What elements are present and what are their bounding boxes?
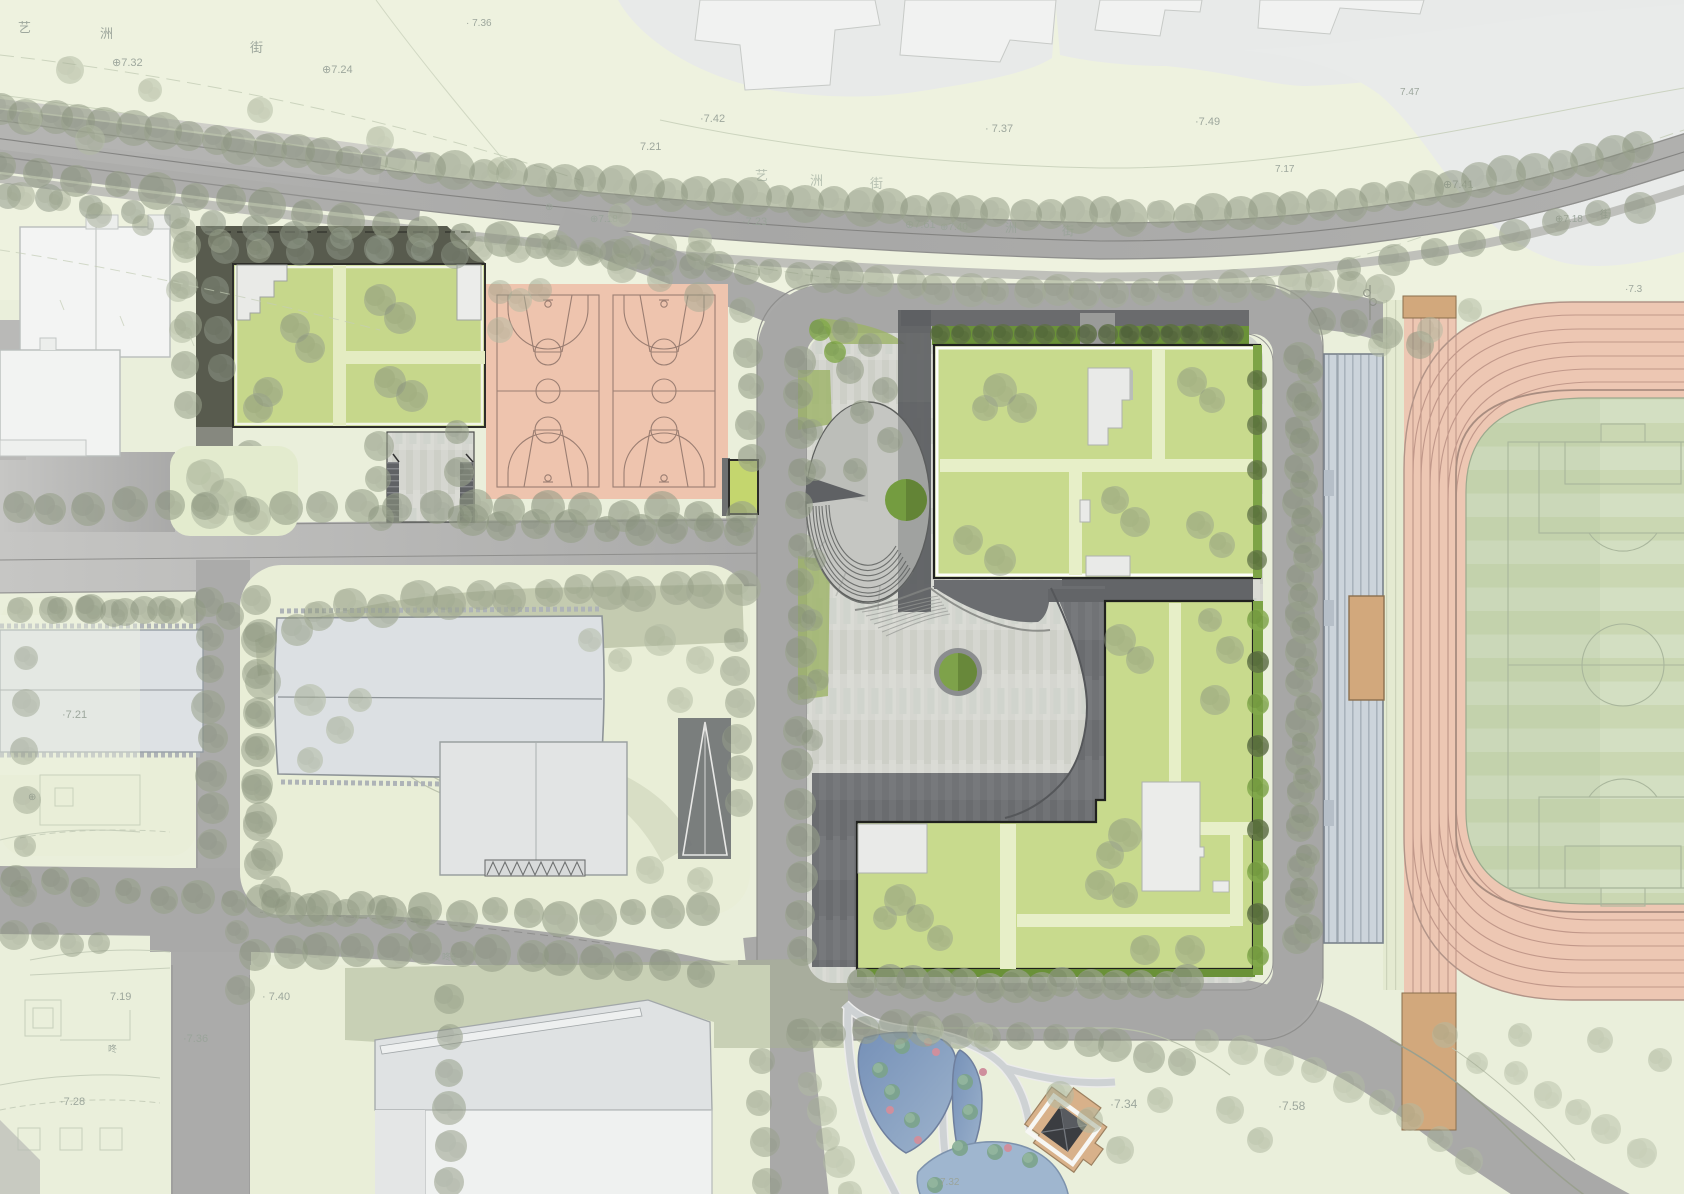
svg-text:⊕7.24: ⊕7.24 xyxy=(322,64,353,76)
svg-text:·7.28: ·7.28 xyxy=(60,1096,85,1108)
svg-text:·7.23: ·7.23 xyxy=(742,216,767,228)
svg-text:·7.34: ·7.34 xyxy=(1110,1097,1138,1111)
svg-text:·7.49: ·7.49 xyxy=(1195,116,1220,128)
svg-text:· 7.40: · 7.40 xyxy=(262,991,290,1003)
svg-text:咚: 咚 xyxy=(108,1043,117,1054)
svg-text:· 7.37: · 7.37 xyxy=(985,123,1013,135)
svg-text:·7.42: ·7.42 xyxy=(700,113,725,125)
svg-text:·7.36: ·7.36 xyxy=(183,1033,208,1045)
svg-text:· 7.36: · 7.36 xyxy=(466,18,492,29)
svg-text:7.17: 7.17 xyxy=(1275,164,1295,175)
svg-text:·7.21: ·7.21 xyxy=(62,709,87,721)
svg-text:7.19: 7.19 xyxy=(110,991,131,1003)
svg-text:⊕: ⊕ xyxy=(545,202,553,213)
svg-text:7.47: 7.47 xyxy=(1400,87,1420,98)
svg-text:7.21: 7.21 xyxy=(640,141,661,153)
svg-text:7.32: 7.32 xyxy=(940,1177,960,1188)
svg-text:洲: 洲 xyxy=(100,26,113,41)
svg-text:⊕7.32: ⊕7.32 xyxy=(112,57,143,69)
svg-text:·7.58: ·7.58 xyxy=(1278,1099,1306,1113)
svg-text:街: 街 xyxy=(250,40,263,55)
svg-text:洲: 洲 xyxy=(810,173,823,188)
svg-text:艺: 艺 xyxy=(18,20,31,35)
svg-text:·7.3: ·7.3 xyxy=(1625,284,1643,295)
